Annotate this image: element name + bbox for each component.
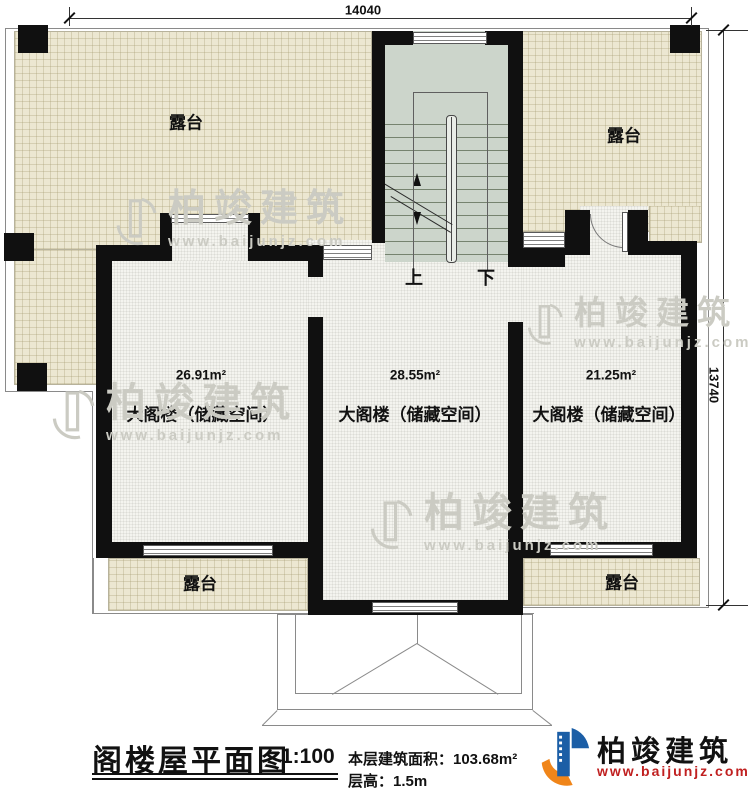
terrace-label: 露台 (607, 122, 641, 147)
column (17, 363, 47, 391)
window (523, 232, 565, 248)
room-area: 26.91m² (176, 368, 226, 383)
dimension-ext (706, 30, 748, 31)
column (18, 25, 48, 53)
room-name: 大阁楼（储藏空间） (533, 401, 686, 426)
stair-down-arrow (413, 212, 421, 225)
terrace-label: 露台 (183, 570, 217, 595)
column (670, 25, 700, 53)
title-underline (92, 773, 338, 775)
eave-line (5, 28, 708, 29)
eave-line (5, 28, 6, 392)
porch-outline (277, 614, 533, 710)
window (413, 32, 487, 44)
door-leaf (622, 212, 628, 252)
stair-outline (487, 92, 488, 270)
brand-logo-icon (534, 724, 592, 788)
dimension-line (723, 30, 724, 606)
wall-segment (372, 31, 413, 45)
dimension-top: 14040 (345, 3, 381, 18)
wall-segment (681, 241, 697, 558)
brand-website: www.baijunjz.com (597, 763, 750, 779)
stair-down-label: 下 (477, 264, 495, 290)
wall-segment (508, 322, 523, 615)
room-middle-floor (308, 240, 523, 615)
wall-segment (508, 31, 523, 267)
eave-line (5, 391, 93, 392)
wall-segment (628, 210, 648, 255)
eave-line (523, 607, 708, 608)
drawing-scale: 1:100 (281, 745, 335, 769)
eave-line (708, 28, 709, 608)
wall-segment (248, 213, 260, 261)
wall-segment (565, 210, 590, 255)
wall-segment (372, 31, 385, 243)
wall-segment (523, 248, 565, 267)
eave-line (93, 558, 94, 614)
window-bay-floor (172, 223, 248, 261)
room-name: 大阁楼（储藏空间） (339, 401, 492, 426)
wall-segment (648, 241, 681, 255)
terrace-label: 露台 (605, 569, 639, 594)
wall-segment (96, 245, 112, 558)
dimension-ext (706, 605, 748, 606)
floor-height-text: 层高：1.5m (348, 770, 427, 791)
porch-corner-line (262, 710, 278, 726)
floor-area-text: 本层建筑面积：103.68m² (348, 748, 517, 769)
room-area: 21.25m² (586, 368, 636, 383)
room-name: 大阁楼（储藏空间） (127, 401, 280, 426)
stair-outline (413, 92, 414, 270)
column (4, 233, 34, 261)
window (550, 544, 653, 556)
terrace-top-right-ext (649, 206, 702, 243)
watermark-logo-icon (48, 384, 96, 442)
floor-plan: 露台 露台 露台 露台 26.91m² 28.55m² 21.25m² 大阁楼（… (0, 0, 750, 794)
window (372, 602, 458, 613)
dimension-line (70, 18, 692, 19)
terrace-label: 露台 (169, 109, 203, 134)
window (171, 214, 249, 223)
stair-outline (413, 92, 487, 93)
dimension-right: 13740 (707, 367, 722, 403)
wall-segment (308, 245, 323, 277)
porch-ridge-line (417, 614, 418, 644)
window (323, 245, 372, 260)
wall-segment (308, 317, 323, 615)
porch-outline (262, 725, 552, 726)
window (143, 545, 273, 556)
wall-segment (485, 31, 523, 45)
stair-handrail-line (451, 117, 452, 261)
stair-up-label: 上 (405, 264, 423, 290)
room-area: 28.55m² (390, 368, 440, 383)
title-underline (92, 778, 338, 780)
stair-up-arrow (413, 173, 421, 186)
